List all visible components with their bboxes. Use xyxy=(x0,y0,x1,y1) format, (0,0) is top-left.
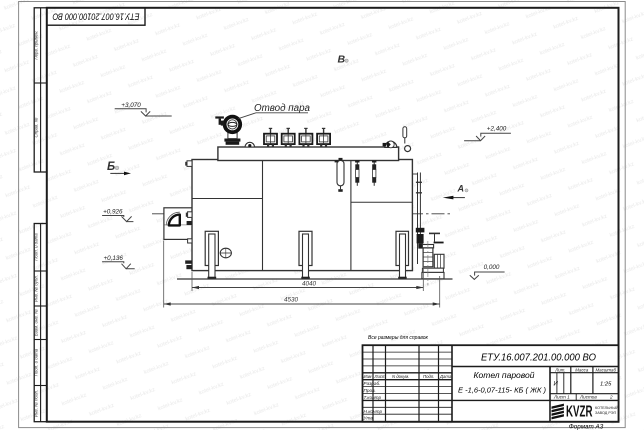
svg-text:И: И xyxy=(554,382,559,388)
svg-text:Перв. примен.: Перв. примен. xyxy=(34,30,39,59)
svg-text:Лист: Лист xyxy=(374,374,386,379)
svg-text:Листов: Листов xyxy=(579,395,597,400)
svg-text:Подп.: Подп. xyxy=(423,374,434,379)
svg-text:ЕТУ.16.007.20100.000 ВО: ЕТУ.16.007.20100.000 ВО xyxy=(53,12,140,22)
svg-text:KVZR: KVZR xyxy=(566,403,593,420)
svg-text:Подп. и дата: Подп. и дата xyxy=(34,233,39,261)
svg-text:Справ. №: Справ. № xyxy=(34,117,39,137)
svg-text:Б: Б xyxy=(107,161,115,173)
svg-text:В: В xyxy=(338,54,346,66)
svg-text:Подп. и дата: Подп. и дата xyxy=(34,348,39,376)
svg-text:+2,400: +2,400 xyxy=(487,125,507,132)
svg-text:Лист 1: Лист 1 xyxy=(553,395,570,400)
svg-text:Пров.: Пров. xyxy=(364,388,376,393)
svg-text:Разраб.: Разраб. xyxy=(364,381,381,386)
svg-text:Взам. инв. №: Взам. инв. № xyxy=(34,309,39,336)
svg-text:0,000: 0,000 xyxy=(484,264,500,271)
svg-text:2: 2 xyxy=(609,395,613,400)
svg-text:Инв. № подл.: Инв. № подл. xyxy=(34,390,39,417)
svg-text:Н.контр: Н.контр xyxy=(364,409,383,414)
svg-text:Масса: Масса xyxy=(575,367,589,372)
svg-text:Котел паровой: Котел паровой xyxy=(474,370,535,380)
svg-text:ЕТУ.16.007.201.00.000 ВО: ЕТУ.16.007.201.00.000 ВО xyxy=(481,352,596,364)
svg-text:4040: 4040 xyxy=(302,280,317,287)
svg-text:Дата: Дата xyxy=(439,374,452,379)
svg-text:N докум.: N докум. xyxy=(392,374,409,379)
svg-text:Отвод пара: Отвод пара xyxy=(254,103,311,114)
svg-text:Изм: Изм xyxy=(364,374,372,379)
svg-text:+3,070: +3,070 xyxy=(121,102,141,109)
svg-text:Все размеры для справок: Все размеры для справок xyxy=(368,335,429,341)
svg-text:4530: 4530 xyxy=(284,297,299,304)
svg-text:Т.контр: Т.контр xyxy=(364,395,382,400)
svg-text:1:25: 1:25 xyxy=(600,382,612,388)
svg-text:Инв. № дубл.: Инв. № дубл. xyxy=(34,275,39,302)
svg-text:Формат А3: Формат А3 xyxy=(569,423,604,430)
svg-text:А: А xyxy=(457,184,465,194)
svg-text:Е -1,6-0,07-115- КБ ( ЖК ): Е -1,6-0,07-115- КБ ( ЖК ) xyxy=(458,386,546,395)
svg-text:КОТЕЛЬНЫЙ: КОТЕЛЬНЫЙ xyxy=(595,406,618,410)
svg-text:Масштаб: Масштаб xyxy=(595,367,616,372)
svg-text:ЗАВОД РЭП: ЗАВОД РЭП xyxy=(595,411,616,415)
svg-text:+0,136: +0,136 xyxy=(103,255,123,262)
svg-text:+0,926: +0,926 xyxy=(103,209,123,216)
svg-text:Утв.: Утв. xyxy=(364,416,375,421)
svg-text:Лит.: Лит. xyxy=(554,367,565,372)
